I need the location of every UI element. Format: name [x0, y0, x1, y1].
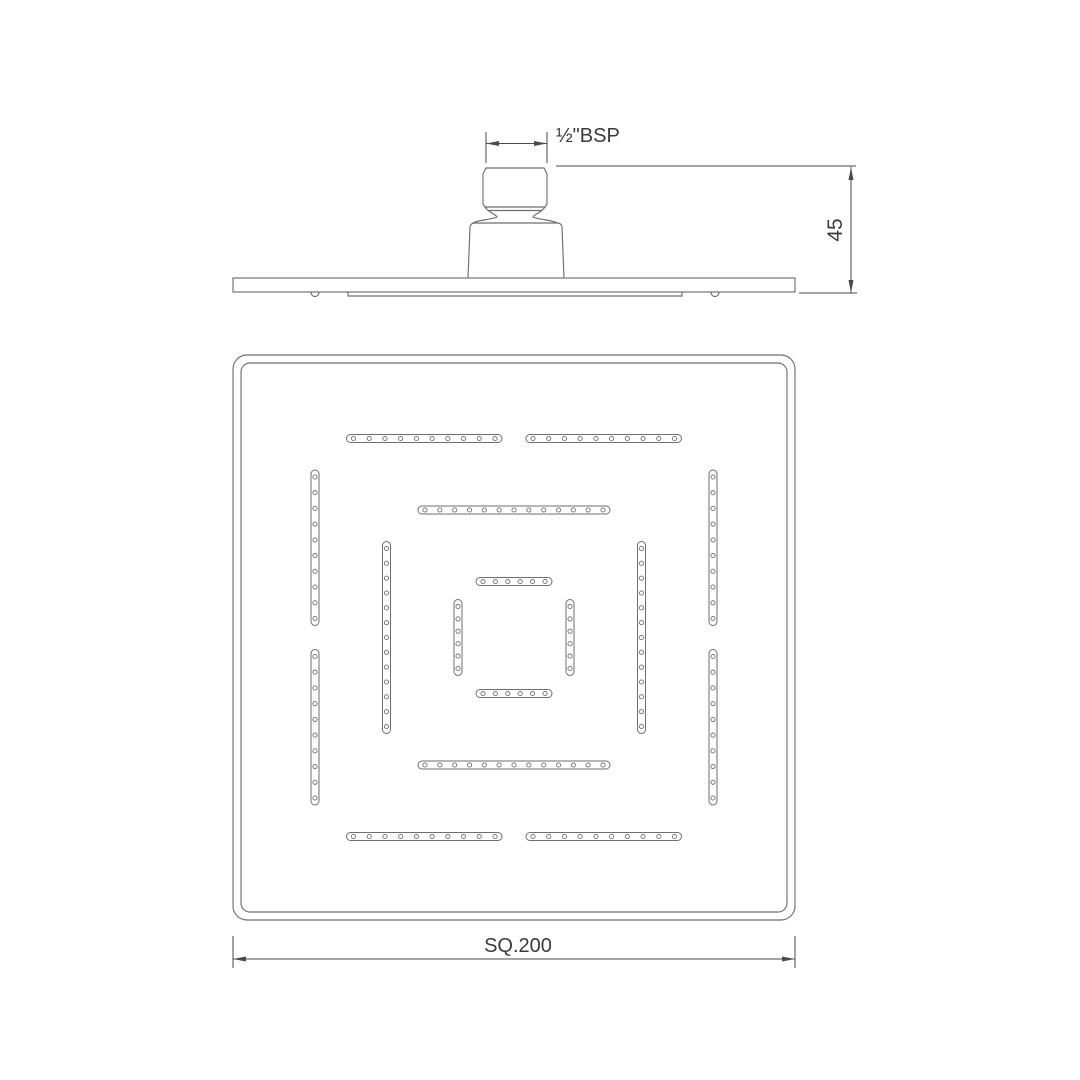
nozzle-hole — [456, 654, 460, 658]
nozzle-hole — [542, 763, 546, 767]
nozzle-hole — [453, 508, 457, 512]
nozzle-nub-left — [311, 292, 319, 297]
nozzle-hole — [384, 665, 388, 669]
nozzle-hole — [313, 749, 317, 753]
nozzle-hole — [711, 686, 715, 690]
nozzle-hole — [384, 695, 388, 699]
nozzle-hole — [562, 834, 566, 838]
nozzle-hole — [610, 834, 614, 838]
nozzle-hole — [556, 763, 560, 767]
nozzle-hole — [313, 686, 317, 690]
nozzle-hole — [639, 635, 643, 639]
nozzle-hole — [578, 834, 582, 838]
nozzle-hole — [482, 763, 486, 767]
nozzle-hole — [384, 650, 388, 654]
nozzle-hole — [711, 475, 715, 479]
nozzle-hole — [568, 654, 572, 658]
nozzle-hole — [639, 710, 643, 714]
nozzle-hole — [423, 508, 427, 512]
side-view — [233, 168, 795, 297]
nozzle-hole — [543, 691, 547, 695]
nozzle-hole — [313, 554, 317, 558]
nozzle-hole — [481, 691, 485, 695]
shower-head-technical-drawing: ½"BSP 45 SQ.200 — [0, 0, 1080, 1080]
nozzle-hole — [313, 585, 317, 589]
nozzle-hole — [313, 538, 317, 542]
connector-waist-right — [533, 207, 557, 223]
nozzle-hole — [461, 436, 465, 440]
nozzle-slot-inner-ring-left — [454, 600, 462, 676]
nozzle-hole — [313, 491, 317, 495]
nozzle-hole — [586, 508, 590, 512]
nozzle-hole — [351, 436, 355, 440]
nozzle-hole — [711, 601, 715, 605]
nozzle-hole — [711, 780, 715, 784]
nozzle-hole — [527, 508, 531, 512]
nozzle-hole — [542, 508, 546, 512]
nozzle-hole — [639, 680, 643, 684]
nozzle-hole — [639, 591, 643, 595]
faceplate-inner-edge — [241, 363, 787, 912]
nozzle-hole — [383, 436, 387, 440]
nozzle-hole — [423, 763, 427, 767]
nozzle-hole — [461, 834, 465, 838]
nozzle-hole — [641, 834, 645, 838]
arrowhead-up — [849, 167, 854, 180]
nozzle-hole — [568, 604, 572, 608]
nozzle-hole — [456, 666, 460, 670]
nozzle-hole — [477, 834, 481, 838]
nozzle-hole — [384, 724, 388, 728]
nozzle-hole — [711, 654, 715, 658]
nozzle-hole — [313, 601, 317, 605]
nozzle-hole — [711, 491, 715, 495]
nozzle-hole — [594, 834, 598, 838]
nozzle-hole — [641, 436, 645, 440]
nozzle-hole — [313, 702, 317, 706]
connector-base — [468, 223, 564, 278]
nozzle-hole — [384, 546, 388, 550]
nozzle-hole — [414, 436, 418, 440]
nozzle-hole — [657, 834, 661, 838]
nozzle-hole — [456, 629, 460, 633]
nozzle-hole — [383, 834, 387, 838]
nozzle-hole — [313, 569, 317, 573]
nozzle-hole — [547, 436, 551, 440]
nozzle-hole — [399, 436, 403, 440]
nozzle-hole — [711, 506, 715, 510]
nozzle-hole — [711, 749, 715, 753]
nozzle-hole — [493, 834, 497, 838]
height-label: 45 — [824, 218, 847, 241]
nozzle-hole — [446, 436, 450, 440]
nozzle-hole — [568, 629, 572, 633]
nozzle-hole — [518, 691, 522, 695]
nozzle-hole — [438, 763, 442, 767]
nozzle-hole — [594, 436, 598, 440]
nozzle-hole — [657, 436, 661, 440]
nozzle-hole — [481, 579, 485, 583]
nozzle-hole — [711, 585, 715, 589]
nozzle-hole — [367, 834, 371, 838]
nozzle-hole — [384, 561, 388, 565]
nozzle-hole — [711, 538, 715, 542]
nozzle-hole — [672, 834, 676, 838]
nozzle-hole — [711, 670, 715, 674]
nozzle-hole — [586, 763, 590, 767]
nozzle-hole — [568, 666, 572, 670]
nozzle-hole — [493, 436, 497, 440]
nozzle-hole — [456, 604, 460, 608]
nozzle-hole — [639, 650, 643, 654]
arrowhead-down — [849, 280, 854, 293]
nozzle-hole — [384, 606, 388, 610]
nozzle-hole — [547, 834, 551, 838]
nozzle-hole — [384, 591, 388, 595]
nozzle-hole — [414, 834, 418, 838]
nozzle-hole — [477, 436, 481, 440]
nozzle-hole — [518, 579, 522, 583]
nozzle-hole — [610, 436, 614, 440]
size-label: SQ.200 — [484, 935, 552, 957]
nozzle-nub-right — [711, 292, 719, 297]
nozzle-hole — [625, 436, 629, 440]
drawing-canvas: ½"BSP 45 SQ.200 — [0, 0, 1080, 1080]
nozzle-hole — [351, 834, 355, 838]
nozzle-hole — [506, 691, 510, 695]
nozzle-hole — [399, 834, 403, 838]
nozzle-hole — [506, 579, 510, 583]
nozzle-hole — [571, 763, 575, 767]
nozzle-hole — [430, 436, 434, 440]
arrowhead-left — [486, 141, 499, 146]
nozzle-hole — [711, 522, 715, 526]
nozzle-hole — [531, 436, 535, 440]
nozzle-hole — [527, 763, 531, 767]
nozzle-hole — [313, 717, 317, 721]
nozzle-hole — [467, 763, 471, 767]
nozzle-hole — [313, 522, 317, 526]
nozzle-hole — [313, 616, 317, 620]
nozzle-hole — [493, 579, 497, 583]
nozzle-hole — [497, 508, 501, 512]
nozzle-hole — [571, 508, 575, 512]
nozzle-hole — [568, 642, 572, 646]
arrowhead-left — [233, 957, 246, 962]
nozzle-hole — [639, 621, 643, 625]
thread-size-label: ½"BSP — [556, 125, 620, 147]
nozzle-hole — [367, 436, 371, 440]
nozzle-hole — [456, 642, 460, 646]
nozzle-slot-inner-ring-top — [476, 578, 552, 586]
nozzle-hole — [639, 665, 643, 669]
nozzle-hole — [625, 834, 629, 838]
nozzle-hole — [446, 834, 450, 838]
nozzle-hole — [568, 617, 572, 621]
nozzle-hole — [384, 621, 388, 625]
connector-waist-left — [473, 207, 497, 223]
nozzle-hole — [711, 702, 715, 706]
nozzle-hole — [313, 733, 317, 737]
nozzle-hole — [430, 834, 434, 838]
nozzle-hole — [562, 436, 566, 440]
nozzle-hole — [384, 576, 388, 580]
nozzle-hole — [556, 508, 560, 512]
nozzle-hole — [313, 764, 317, 768]
nozzle-hole — [313, 670, 317, 674]
nozzle-hole — [531, 691, 535, 695]
nozzle-hole — [639, 576, 643, 580]
size-dimension: SQ.200 — [233, 935, 795, 968]
nozzle-hole — [601, 763, 605, 767]
nozzle-hole — [384, 680, 388, 684]
nozzle-hole — [543, 579, 547, 583]
nozzle-hole — [512, 508, 516, 512]
nozzle-hole — [711, 733, 715, 737]
arrowhead-right — [534, 141, 547, 146]
nozzle-hole — [313, 796, 317, 800]
faceplate-outer-edge — [233, 355, 795, 920]
nozzle-hole — [672, 436, 676, 440]
nozzle-slot-inner-ring-bottom — [476, 690, 552, 698]
nozzle-hole — [711, 569, 715, 573]
nozzle-hole — [601, 508, 605, 512]
nozzle-hole — [313, 506, 317, 510]
nozzle-hole — [512, 763, 516, 767]
nozzle-hole — [313, 475, 317, 479]
nozzle-hole — [313, 780, 317, 784]
nozzle-hole — [453, 763, 457, 767]
nozzle-hole — [711, 717, 715, 721]
thread-nipple — [483, 168, 547, 207]
nozzle-hole — [313, 654, 317, 658]
nozzle-hole — [482, 508, 486, 512]
arrowhead-right — [782, 957, 795, 962]
nozzle-hole — [493, 691, 497, 695]
nozzle-hole — [497, 763, 501, 767]
nozzle-hole — [639, 695, 643, 699]
faceplate-recess-line — [348, 292, 682, 296]
nozzle-hole — [531, 834, 535, 838]
nozzle-hole — [711, 796, 715, 800]
nozzle-hole — [711, 554, 715, 558]
nozzle-hole — [639, 606, 643, 610]
nozzle-hole — [711, 764, 715, 768]
nozzle-slot-inner-ring-right — [566, 600, 574, 676]
face-view — [233, 355, 795, 920]
nozzle-hole — [531, 579, 535, 583]
nozzle-hole — [639, 724, 643, 728]
nozzle-hole — [384, 635, 388, 639]
height-dimension: 45 — [556, 166, 857, 293]
nozzle-hole — [384, 710, 388, 714]
nozzle-hole — [711, 616, 715, 620]
nozzle-hole — [639, 546, 643, 550]
nozzle-pattern — [311, 435, 717, 841]
thread-dimension: ½"BSP — [486, 125, 620, 163]
nozzle-hole — [456, 617, 460, 621]
plate-side-profile — [233, 278, 795, 292]
nozzle-hole — [467, 508, 471, 512]
nozzle-hole — [639, 561, 643, 565]
nozzle-hole — [438, 508, 442, 512]
nozzle-hole — [578, 436, 582, 440]
